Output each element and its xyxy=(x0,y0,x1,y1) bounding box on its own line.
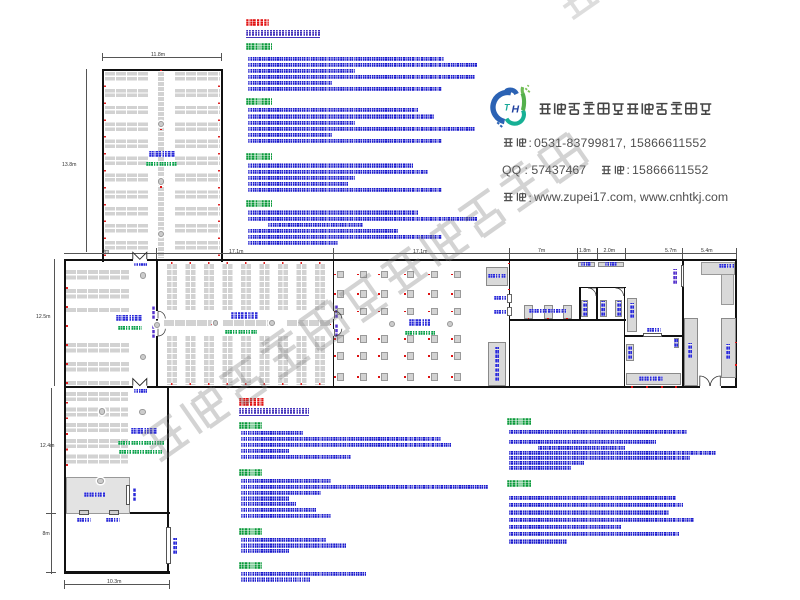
svg-text:H: H xyxy=(512,104,520,116)
svg-text:T: T xyxy=(504,103,511,113)
